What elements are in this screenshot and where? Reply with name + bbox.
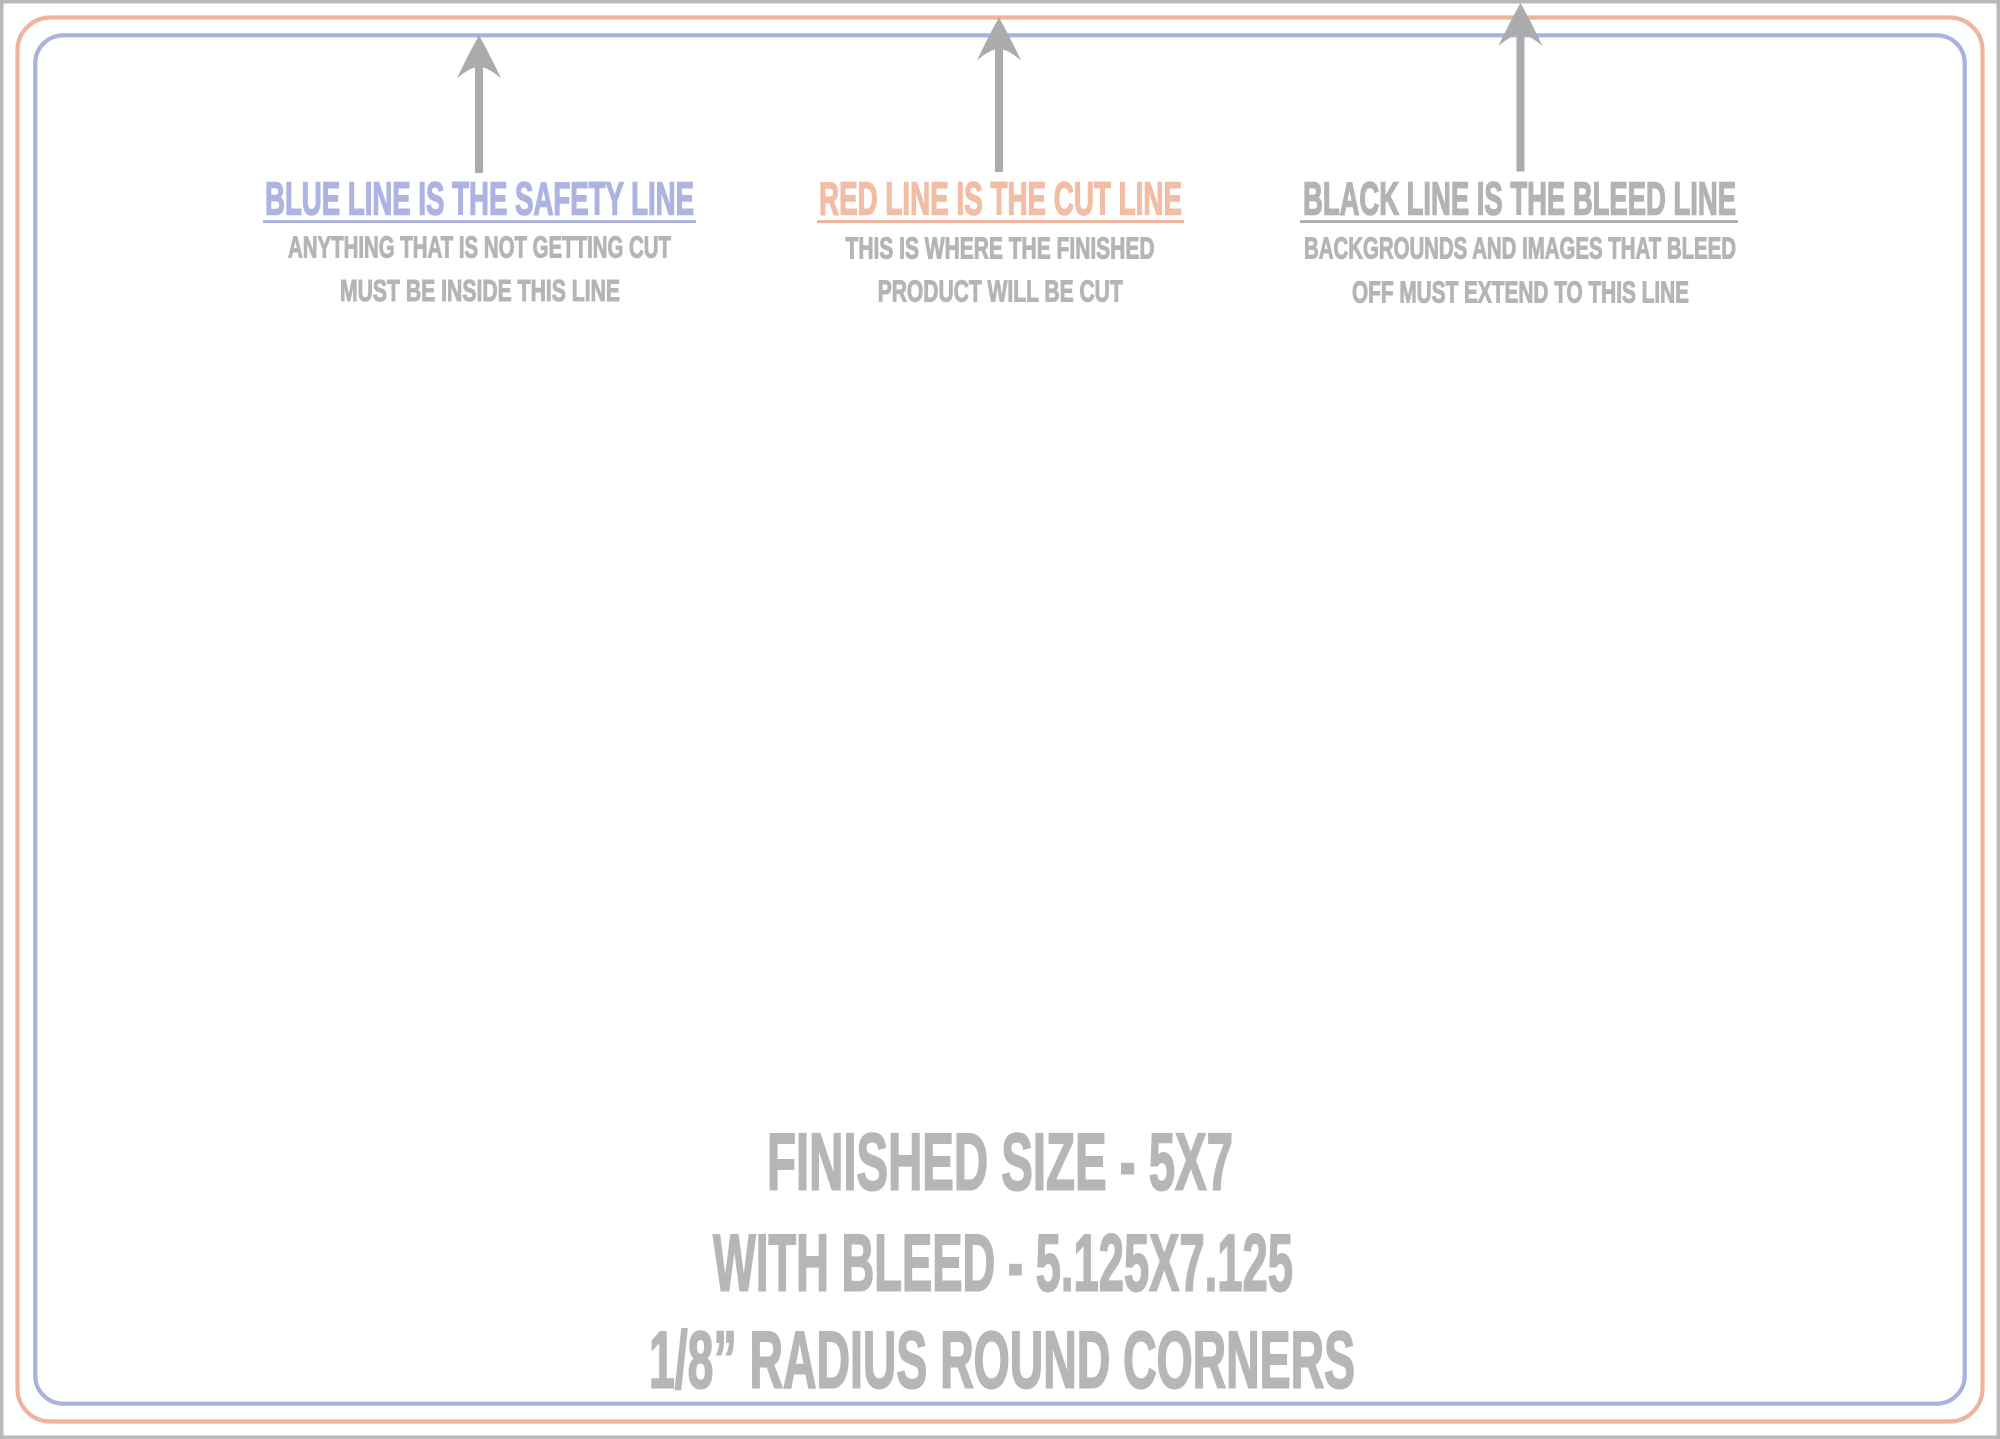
svg-text:ANYTHING THAT IS NOT GETTING C: ANYTHING THAT IS NOT GETTING CUT bbox=[288, 232, 671, 265]
svg-text:MUST BE INSIDE THIS LINE: MUST BE INSIDE THIS LINE bbox=[340, 275, 620, 308]
svg-text:RED LINE IS THE CUT LINE: RED LINE IS THE CUT LINE bbox=[819, 173, 1182, 225]
svg-text:BLUE LINE IS THE SAFETY LINE: BLUE LINE IS THE SAFETY LINE bbox=[265, 173, 694, 225]
svg-text:BACKGROUNDS AND IMAGES THAT BL: BACKGROUNDS AND IMAGES THAT BLEED bbox=[1304, 232, 1736, 265]
svg-text:FINISHED SIZE - 5X7: FINISHED SIZE - 5X7 bbox=[767, 1117, 1233, 1207]
svg-text:BLACK LINE IS THE BLEED LINE: BLACK LINE IS THE BLEED LINE bbox=[1303, 173, 1736, 225]
svg-text:OFF MUST EXTEND TO THIS LINE: OFF MUST EXTEND TO THIS LINE bbox=[1352, 277, 1689, 310]
svg-text:PRODUCT WILL BE CUT: PRODUCT WILL BE CUT bbox=[878, 275, 1123, 308]
svg-text:1/8” RADIUS ROUND CORNERS: 1/8” RADIUS ROUND CORNERS bbox=[649, 1316, 1355, 1406]
svg-text:THIS IS WHERE THE FINISHED: THIS IS WHERE THE FINISHED bbox=[846, 232, 1155, 265]
svg-text:WITH BLEED - 5.125X7.125: WITH BLEED - 5.125X7.125 bbox=[713, 1219, 1293, 1309]
